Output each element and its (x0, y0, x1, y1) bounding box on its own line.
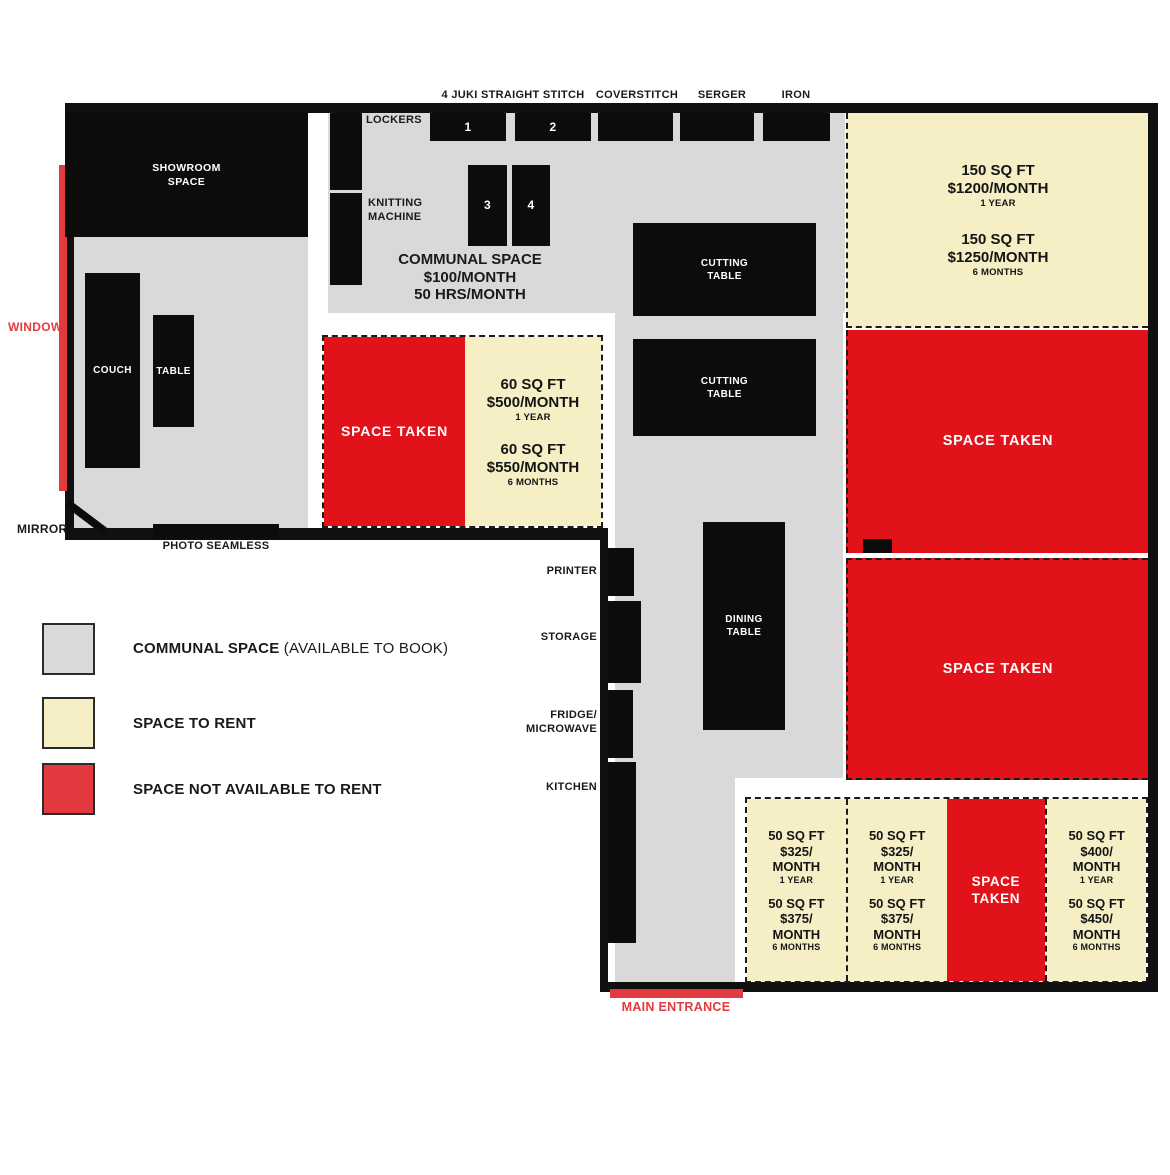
legend-taken-swatch (42, 763, 95, 815)
iron-label: IRON (752, 89, 840, 101)
space-to-rent-150: 150 SQ FT $1200/MONTH 1 YEAR 150 SQ FT $… (846, 113, 1148, 328)
rental-cell-3-taken: SPACE TAKEN (947, 799, 1046, 981)
window-label: WINDOW (8, 320, 62, 334)
fridge-label-line2: MICROWAVE (490, 722, 597, 736)
space-taken-right-lower-label: SPACE TAKEN (943, 661, 1054, 678)
legend-taken-label-bold: SPACE NOT AVAILABLE TO RENT (133, 781, 382, 798)
legend-rent: SPACE TO RENT (42, 697, 256, 749)
offer-150-1year: 150 SQ FT $1200/MONTH 1 YEAR (948, 162, 1049, 209)
legend-communal: COMMUNAL SPACE (AVAILABLE TO BOOK) (42, 622, 448, 675)
offer-150-6months-size: 150 SQ FT (948, 231, 1049, 249)
cell1-offer2-term: 6 MONTHS (768, 942, 824, 952)
couch: COUCH (85, 273, 140, 468)
legend-communal-label-rest: (AVAILABLE TO BOOK) (284, 640, 448, 657)
showroom-label-line2: SPACE (168, 175, 205, 189)
cell4-offer1-term: 1 YEAR (1068, 875, 1124, 885)
legend-taken: SPACE NOT AVAILABLE TO RENT (42, 763, 382, 815)
cell2-offer1-price2: MONTH (869, 859, 925, 875)
cell4-offer1-price2: MONTH (1068, 859, 1124, 875)
door-notch (863, 539, 892, 553)
iron-station (763, 113, 830, 141)
offer-60-6months-price: $550/MONTH (487, 459, 580, 477)
offer-60-6months-size: 60 SQ FT (487, 441, 580, 459)
dining-table: DINING TABLE (703, 522, 785, 730)
fridge-label-line1: FRIDGE/ (490, 708, 597, 722)
dining-table-label-line1: DINING (725, 613, 762, 626)
offer-60-6months: 60 SQ FT $550/MONTH 6 MONTHS (487, 441, 580, 488)
machine-3: 3 (468, 165, 507, 246)
legend-rent-label-bold: SPACE TO RENT (133, 715, 256, 732)
legend-rent-label: SPACE TO RENT (133, 715, 256, 732)
rental-cell-4: 50 SQ FT $400/ MONTH 1 YEAR 50 SQ FT $45… (1045, 799, 1146, 981)
lockers-label: LOCKERS (366, 114, 422, 126)
offer-60-1year-size: 60 SQ FT (487, 376, 580, 394)
wall-left-room-bottom (65, 528, 608, 540)
cell1-offer2-price2: MONTH (768, 927, 824, 943)
communal-pricing-line3: 50 HRS/MONTH (360, 286, 580, 304)
cell2-offer2-size: 50 SQ FT (869, 896, 925, 912)
couch-label: COUCH (93, 364, 132, 377)
knitting-machine-label-line1: KNITTING (368, 196, 422, 210)
wall-top (65, 103, 1158, 113)
wall-corridor-left (600, 540, 608, 992)
knitting-machine-label-line2: MACHINE (368, 210, 422, 224)
floor-plan: WINDOW MIRROR PHOTO SEAMLESS MAIN ENTRAN… (0, 0, 1170, 1175)
cell4-offer1-size: 50 SQ FT (1068, 828, 1124, 844)
machine-2: 2 (515, 113, 591, 141)
rental-cells-room: 50 SQ FT $325/ MONTH 1 YEAR 50 SQ FT $37… (745, 797, 1148, 983)
knitting-machine-label: KNITTING MACHINE (368, 196, 422, 224)
cell3-taken-line2: TAKEN (972, 890, 1021, 907)
machine-4: 4 (512, 165, 550, 246)
cell1-offer1-price: $325/ (768, 844, 824, 860)
offer-150-1year-price: $1200/MONTH (948, 180, 1049, 198)
cell2-offer2-price: $375/ (869, 911, 925, 927)
legend-communal-label-bold: COMMUNAL SPACE (133, 640, 279, 657)
cell2-offer2-term: 6 MONTHS (869, 942, 925, 952)
rental-combo-60sqft: SPACE TAKEN 60 SQ FT $500/MONTH 1 YEAR 6… (322, 335, 603, 528)
offer-150-1year-size: 150 SQ FT (948, 162, 1049, 180)
cell2-offer-1year: 50 SQ FT $325/ MONTH 1 YEAR (869, 828, 925, 885)
space-taken-right-lower: SPACE TAKEN (846, 558, 1148, 780)
cell4-offer2-term: 6 MONTHS (1068, 942, 1124, 952)
cell1-offer-6months: 50 SQ FT $375/ MONTH 6 MONTHS (768, 896, 824, 953)
offer-150-6months: 150 SQ FT $1250/MONTH 6 MONTHS (948, 231, 1049, 278)
cell2-offer-6months: 50 SQ FT $375/ MONTH 6 MONTHS (869, 896, 925, 953)
cell1-offer2-price: $375/ (768, 911, 824, 927)
space-taken-right-upper-label: SPACE TAKEN (943, 433, 1054, 450)
cell2-offer1-price: $325/ (869, 844, 925, 860)
cell1-offer-1year: 50 SQ FT $325/ MONTH 1 YEAR (768, 828, 824, 885)
cell2-offer1-term: 1 YEAR (869, 875, 925, 885)
main-entrance-label: MAIN ENTRANCE (596, 1000, 756, 1014)
cell2-offer2-price2: MONTH (869, 927, 925, 943)
cell4-offer2-price: $450/ (1068, 911, 1124, 927)
kitchen-block (608, 762, 636, 943)
cutting-table-2-label-line1: CUTTING (701, 375, 748, 388)
knitting-machine-block (330, 193, 362, 285)
space-taken-60-left: SPACE TAKEN (324, 337, 465, 526)
cutting-table-2-label-line2: TABLE (707, 388, 742, 401)
cell1-offer2-size: 50 SQ FT (768, 896, 824, 912)
cell2-offer1-size: 50 SQ FT (869, 828, 925, 844)
cutting-table-2: CUTTING TABLE (633, 339, 816, 436)
table: TABLE (153, 315, 194, 427)
offer-60-1year-term: 1 YEAR (487, 412, 580, 423)
printer-label: PRINTER (500, 565, 597, 577)
rental-cell-1: 50 SQ FT $325/ MONTH 1 YEAR 50 SQ FT $37… (747, 799, 846, 981)
kitchen-label: KITCHEN (500, 781, 597, 793)
photo-seamless-bar (153, 524, 279, 538)
cell1-offer1-size: 50 SQ FT (768, 828, 824, 844)
showroom-space: SHOWROOM SPACE (65, 113, 308, 237)
machine-4-number: 4 (527, 199, 534, 212)
storage-block (608, 601, 641, 683)
machine-2-number: 2 (549, 121, 556, 134)
fridge-microwave-block (608, 690, 633, 758)
machine-1: 1 (430, 113, 506, 141)
coverstitch-machine (598, 113, 673, 141)
wall-right (1148, 103, 1158, 992)
offer-150-6months-price: $1250/MONTH (948, 249, 1049, 267)
space-to-rent-60: 60 SQ FT $500/MONTH 1 YEAR 60 SQ FT $550… (465, 337, 601, 526)
cutting-table-1-label-line1: CUTTING (701, 257, 748, 270)
mirror-label: MIRROR (17, 522, 67, 536)
machine-1-number: 1 (464, 121, 471, 134)
offer-60-6months-term: 6 MONTHS (487, 477, 580, 488)
space-taken-right-upper: SPACE TAKEN (846, 330, 1148, 553)
communal-pricing-line1: COMMUNAL SPACE (360, 251, 580, 269)
cell4-offer2-price2: MONTH (1068, 927, 1124, 943)
storage-label: STORAGE (500, 631, 597, 643)
photo-seamless-label: PHOTO SEAMLESS (150, 540, 282, 552)
printer-block (608, 548, 634, 596)
cell4-offer-1year: 50 SQ FT $400/ MONTH 1 YEAR (1068, 828, 1124, 885)
space-taken-60-label: SPACE TAKEN (341, 423, 448, 440)
machine-3-number: 3 (484, 199, 491, 212)
serger-machine (680, 113, 754, 141)
legend-communal-label: COMMUNAL SPACE (AVAILABLE TO BOOK) (133, 640, 448, 657)
offer-60-1year: 60 SQ FT $500/MONTH 1 YEAR (487, 376, 580, 423)
main-entrance-marker (610, 989, 743, 998)
communal-pricing: COMMUNAL SPACE $100/MONTH 50 HRS/MONTH (360, 251, 580, 304)
offer-60-1year-price: $500/MONTH (487, 394, 580, 412)
rental-cell-2: 50 SQ FT $325/ MONTH 1 YEAR 50 SQ FT $37… (846, 799, 947, 981)
table-label: TABLE (156, 365, 191, 378)
lockers-block (330, 113, 362, 190)
legend-taken-label: SPACE NOT AVAILABLE TO RENT (133, 781, 382, 798)
legend-rent-swatch (42, 697, 95, 749)
communal-pricing-line2: $100/MONTH (360, 269, 580, 287)
cutting-table-1-label-line2: TABLE (707, 270, 742, 283)
dining-table-label-line2: TABLE (727, 626, 762, 639)
offer-150-1year-term: 1 YEAR (948, 198, 1049, 209)
cell3-taken-line1: SPACE (972, 873, 1021, 890)
fridge-microwave-label: FRIDGE/ MICROWAVE (490, 708, 597, 736)
showroom-label-line1: SHOWROOM (152, 161, 221, 175)
juki-label: 4 JUKI STRAIGHT STITCH (420, 89, 606, 101)
cutting-table-1: CUTTING TABLE (633, 223, 816, 316)
offer-150-6months-term: 6 MONTHS (948, 267, 1049, 278)
cell4-offer1-price: $400/ (1068, 844, 1124, 860)
cell4-offer-6months: 50 SQ FT $450/ MONTH 6 MONTHS (1068, 896, 1124, 953)
cell1-offer1-term: 1 YEAR (768, 875, 824, 885)
cell4-offer2-size: 50 SQ FT (1068, 896, 1124, 912)
cell1-offer1-price2: MONTH (768, 859, 824, 875)
legend-communal-swatch (42, 623, 95, 675)
